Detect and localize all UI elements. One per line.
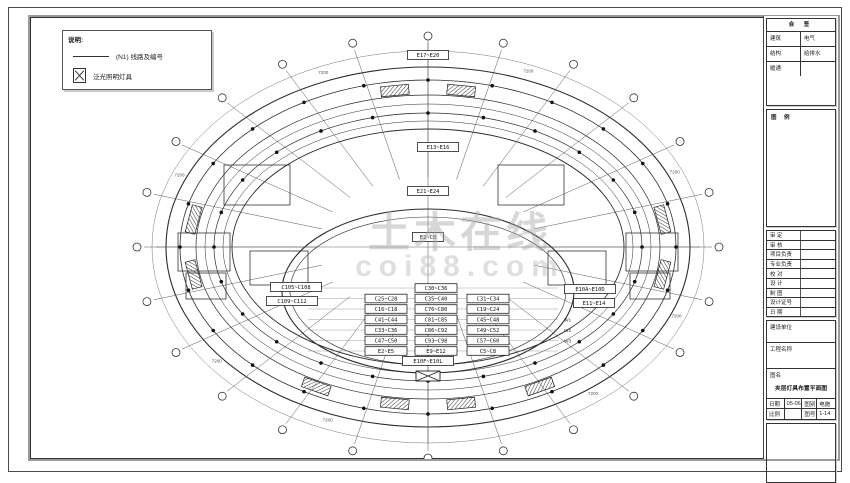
circuit-label: C76~C80 [425, 307, 448, 313]
luminaire-dot [319, 129, 323, 133]
circuit-label: E13~E16 [427, 145, 450, 151]
grid-bubble [172, 349, 180, 357]
luminaire-dot [211, 162, 215, 166]
personnel-label: 校 对 [767, 269, 801, 278]
luminaire-dot [426, 111, 430, 115]
circuit-label: C81~C85 [425, 318, 448, 324]
crossed-box-symbol [73, 68, 86, 83]
title-block-legend-area: 图 例 [766, 109, 836, 227]
sign-cell: 建筑 [767, 32, 801, 46]
grid-bubble [349, 447, 357, 455]
grid-bubble [676, 349, 684, 357]
luminaire-dot [666, 288, 670, 292]
sign-cell: 暖通 [767, 62, 801, 76]
personnel-row: 专业负责 [767, 260, 835, 270]
grid-bubble [172, 138, 180, 146]
grid-bubble [218, 392, 226, 400]
sign-cell: 结构 [767, 47, 801, 61]
type-label: 图别 [802, 399, 817, 409]
circuit-label: E10A~E10D [575, 287, 604, 293]
grid-bubble [143, 188, 151, 196]
legend-item-label: 泛光照明灯具 [93, 71, 132, 81]
stair-block [447, 397, 476, 410]
personnel-row: 审 核 [767, 241, 835, 251]
drawing-name-row: 图名 夹层灯具布置平面图 [767, 369, 835, 399]
grid-bubble [133, 243, 141, 251]
luminaire-dot [362, 407, 366, 411]
legend-item-floodlight: 泛光照明灯具 [73, 68, 132, 83]
luminaire-dot [178, 245, 182, 249]
grid-bubble [570, 60, 578, 68]
grid-bubble [218, 94, 226, 102]
personnel-label: 设计证号 [767, 298, 801, 307]
luminaire-dot [641, 329, 645, 333]
grid-bubble [499, 39, 507, 47]
circuit-label: C86~C92 [425, 328, 448, 334]
luminaire-dot [426, 78, 430, 82]
grid-bubble [349, 39, 357, 47]
personnel-label: 日 期 [767, 308, 801, 317]
circuit-label: C47~C50 [375, 339, 398, 345]
grid-bubble [676, 138, 684, 146]
dimension-label: 7200 [671, 313, 682, 318]
grid-bubble [143, 298, 151, 306]
luminaire-dot [578, 340, 582, 344]
dimension-label: 7200 [318, 70, 329, 75]
scale-label: 比例 [767, 409, 785, 419]
luminaire-dot [674, 245, 678, 249]
grid-bubble [715, 243, 723, 251]
personnel-row: 日 期 [767, 308, 835, 317]
project-label: 工程名称 [770, 345, 792, 353]
grid-bubble [424, 32, 432, 40]
luminaire-dot [212, 245, 216, 249]
sign-off-row: 建筑 电气 [767, 32, 835, 47]
date-label: 日期 [767, 399, 785, 409]
luminaire-dot [187, 202, 191, 206]
legend-title: 说明: [68, 34, 83, 44]
circuit-label: C49~C52 [477, 328, 500, 334]
luminaire-dot [371, 116, 375, 120]
personnel-label: 制 图 [767, 289, 801, 298]
luminaire-dot [362, 84, 366, 88]
owner-row: 建设单位 [767, 321, 835, 343]
drawing-meta-grid: 日期 05-06 图别 电施 比例 图号 1-14 [767, 399, 835, 419]
luminaire-dot [482, 116, 486, 120]
luminaire-dot [640, 245, 644, 249]
circuit-label: C35~C40 [425, 297, 448, 303]
polyline-symbol [73, 56, 109, 57]
scale-value [785, 409, 803, 419]
luminaire-dot [219, 280, 223, 284]
luminaire-dot [251, 363, 255, 367]
wire-label: W3 [564, 339, 572, 345]
circuit-label: E2~C8 [420, 235, 436, 241]
circuit-label: C41~C44 [375, 318, 398, 324]
drawing-info-block: 建设单位 工程名称 图名 夹层灯具布置平面图 日期 05-06 图别 电施 比例… [766, 320, 836, 420]
drawing-name-label: 图名 [770, 371, 781, 379]
project-row: 工程名称 [767, 343, 835, 369]
dimension-label: 7200 [588, 391, 599, 396]
circuit-label: C5~C8 [480, 349, 496, 355]
luminaire-dot [319, 361, 323, 365]
luminaire-dot [426, 412, 430, 416]
personnel-label: 审 核 [767, 241, 801, 250]
grid-bubble [279, 60, 287, 68]
circuit-label: E17~E20 [417, 53, 440, 59]
luminaire-dot [211, 329, 215, 333]
luminaire-dot [275, 150, 279, 154]
luminaire-dot [302, 101, 306, 105]
circuit-label: C16~C18 [375, 307, 398, 313]
dimension-label: 7200 [523, 69, 534, 74]
wire-label: W2 [564, 328, 572, 334]
circuit-label: E10F~E10L [413, 359, 442, 365]
sign-off-row: 暖通 [767, 62, 835, 76]
personnel-label: 审 定 [767, 231, 801, 240]
luminaire-dot [612, 178, 616, 182]
circuit-label: C45~C48 [477, 318, 500, 324]
circuit-label: E11~E14 [583, 301, 606, 307]
grid-spoke [534, 194, 702, 229]
grid-bubble [705, 188, 713, 196]
luminaire-dot [612, 312, 616, 316]
luminaire-dot [490, 407, 494, 411]
luminaire-dot [633, 211, 637, 215]
sign-off-header: 会 签 [767, 19, 835, 32]
circuit-label: E9~E12 [426, 349, 445, 355]
sign-cell [801, 62, 835, 76]
dimension-label: 7200 [323, 417, 334, 422]
grid-bubble [424, 454, 432, 459]
stair-block [447, 84, 476, 97]
stair-block [380, 84, 409, 97]
luminaire-dot [371, 375, 375, 379]
circuit-label: C109~C112 [277, 299, 306, 305]
luminaire-dot [482, 375, 486, 379]
personnel-label: 专业负责 [767, 260, 801, 269]
luminaire-dot [550, 390, 554, 394]
type-value: 电施 [817, 399, 835, 409]
circuit-label: E2~E5 [378, 349, 394, 355]
luminaire-dot [219, 211, 223, 215]
legend-item-label: (N1) 线路及编号 [116, 51, 163, 61]
grid-bubble [630, 392, 638, 400]
luminaire-dot [241, 178, 245, 182]
legend-area-header: 图 例 [771, 113, 793, 121]
dimension-label: 7200 [175, 173, 186, 178]
personnel-row: 设计证号 [767, 298, 835, 308]
circuit-label: C93~C98 [425, 339, 448, 345]
grid-bubble [499, 447, 507, 455]
luminaire-dot [550, 101, 554, 105]
personnel-label: 项目负责 [767, 250, 801, 259]
luminaire-dot [533, 129, 537, 133]
grid-bubble [279, 426, 287, 434]
dimension-label: 7200 [670, 170, 681, 175]
sign-cell: 给排水 [801, 47, 835, 61]
drawing-no-value: 1-14 [817, 409, 835, 419]
drawing-no-label: 图号 [802, 409, 817, 419]
personnel-row: 设 计 [767, 279, 835, 289]
luminaire-dot [578, 150, 582, 154]
sign-off-row: 结构 给排水 [767, 47, 835, 62]
circuit-label: C19~C24 [477, 307, 500, 313]
circuit-label: C30~C36 [425, 286, 448, 292]
circuit-label: C25~C28 [375, 297, 398, 303]
owner-label: 建设单位 [770, 323, 792, 331]
luminaire-dot [241, 312, 245, 316]
luminaire-dot [275, 340, 279, 344]
floodlight-fixture-symbol [416, 371, 440, 381]
luminaire-dot [633, 280, 637, 284]
personnel-row: 校 对 [767, 269, 835, 279]
luminaire-dot [251, 127, 255, 131]
circuit-label: C57~C60 [477, 339, 500, 345]
grid-bubble [705, 298, 713, 306]
drawing-name-value: 夹层灯具布置平面图 [767, 383, 835, 392]
grid-spoke [534, 265, 702, 300]
legend-box: 说明: (N1) 线路及编号 泛光照明灯具 [62, 30, 212, 90]
circuit-label: C31~C34 [477, 297, 500, 303]
personnel-row: 审 定 [767, 231, 835, 241]
circuit-label: C33~C36 [375, 328, 398, 334]
dimension-label: 7200 [212, 359, 223, 364]
grid-spoke [227, 103, 350, 198]
circuit-label: E21~E24 [417, 189, 440, 195]
personnel-label: 设 计 [767, 279, 801, 288]
luminaire-dot [490, 84, 494, 88]
personnel-table: 审 定审 核项目负责专业负责校 对设 计制 图设计证号日 期 [766, 230, 836, 317]
stair-block [380, 397, 409, 410]
sign-off-table: 会 签 建筑 电气 结构 给排水 暖通 [766, 18, 836, 106]
luminaire-dot [641, 162, 645, 166]
luminaire-dot [666, 202, 670, 206]
date-value: 05-06 [785, 399, 803, 409]
luminaire-dot [602, 127, 606, 131]
personnel-row: 制 图 [767, 289, 835, 299]
grid-spoke [154, 194, 322, 229]
legend-item-wiring: (N1) 线路及编号 [73, 51, 163, 61]
luminaire-dot [602, 363, 606, 367]
personnel-row: 项目负责 [767, 250, 835, 260]
circuit-label: C105~C108 [281, 285, 310, 291]
sign-cell: 电气 [801, 32, 835, 46]
luminaire-dot [533, 361, 537, 365]
luminaire-dot [187, 288, 191, 292]
wire-label: W1 [564, 318, 572, 324]
title-block-blank-area [766, 423, 836, 483]
luminaire-dot [302, 390, 306, 394]
title-block: 会 签 建筑 电气 结构 给排水 暖通 图 例 审 定审 核项目负责专业负责校 … [763, 16, 838, 459]
grid-bubble [570, 426, 578, 434]
grid-spoke [506, 103, 629, 198]
grid-bubble [630, 94, 638, 102]
